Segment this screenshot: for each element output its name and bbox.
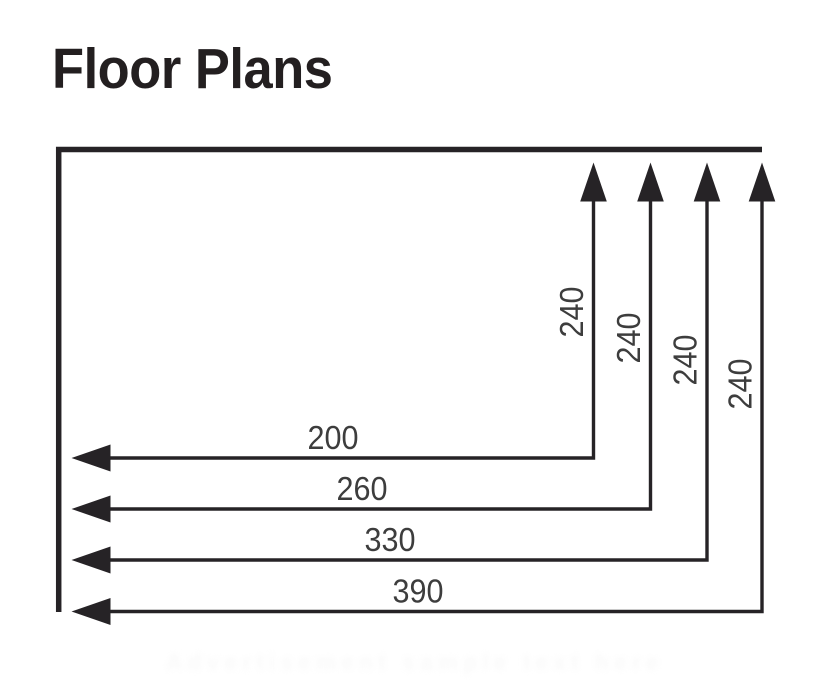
svg-text:240: 240: [722, 359, 759, 410]
svg-text:240: 240: [553, 287, 590, 338]
svg-text:330: 330: [365, 521, 416, 558]
svg-text:260: 260: [337, 470, 388, 507]
svg-text:200: 200: [308, 419, 359, 456]
svg-text:240: 240: [610, 313, 647, 364]
svg-text:390: 390: [393, 573, 444, 610]
svg-text:240: 240: [667, 335, 704, 386]
